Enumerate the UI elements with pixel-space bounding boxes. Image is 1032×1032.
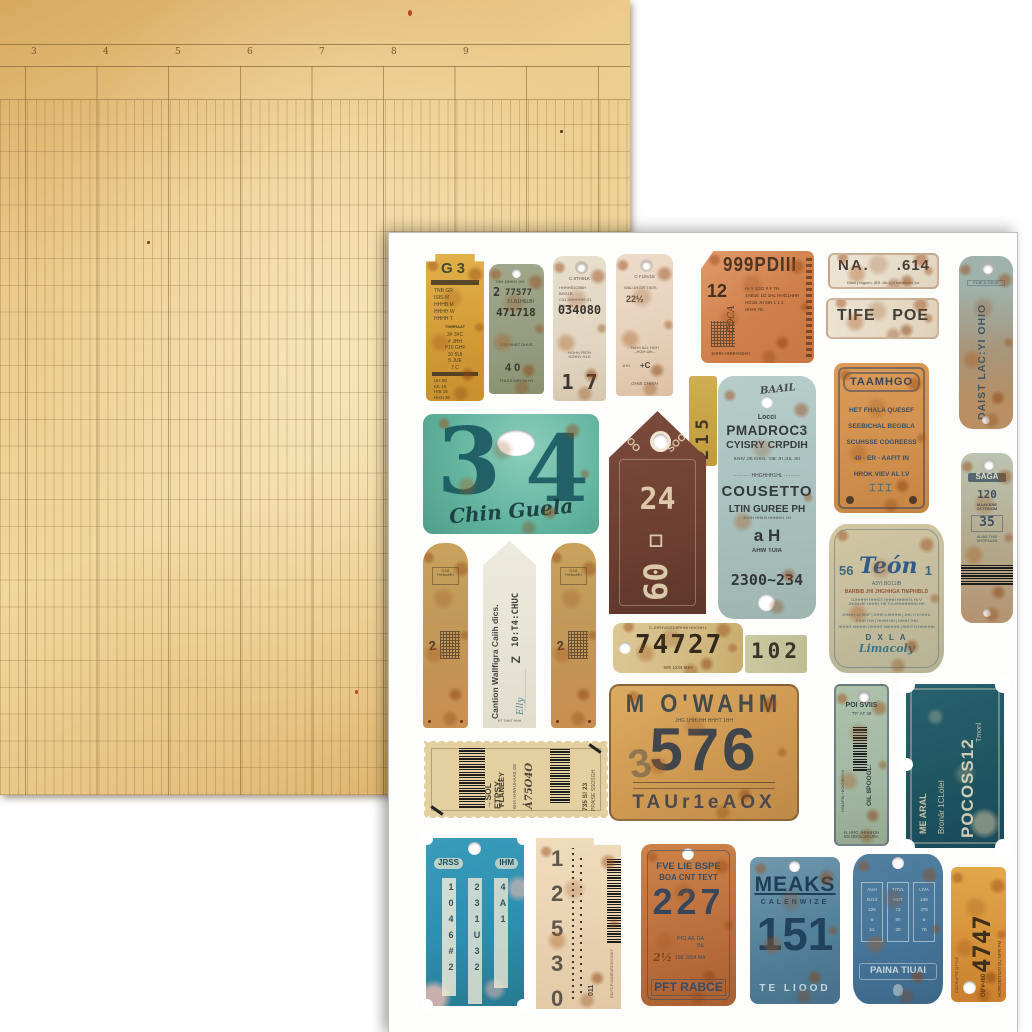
ink-speck — [560, 130, 563, 133]
dotted-rule — [580, 854, 582, 993]
ink-bar — [432, 372, 478, 376]
strip-text-rotated: HOIROBITION DU NPR PM — [997, 873, 1002, 997]
plaque-text: a H — [718, 526, 816, 545]
punch-hole — [468, 842, 481, 855]
ticket-title: 999PDIII — [723, 253, 797, 276]
plate-number: 120 — [961, 489, 1013, 501]
tag-text: PIG AE DA — [677, 936, 704, 942]
tag-badge: IHM — [495, 858, 518, 869]
tag-number: 1 7 — [553, 371, 606, 393]
bookmark-strip-right: GJrA HrHswHlH 2 — [551, 543, 596, 728]
plate-text: 905 1234 5HH — [613, 665, 743, 670]
crest-ornament — [893, 984, 903, 996]
tag-text: H. HHG JHHHH1H ES ODGL1BAJRA — [836, 831, 887, 840]
stamp-text-rotated: PRAISE SSOSGH — [592, 753, 598, 811]
plaque-text: ·········· HHGHHH1HL ·········· — [718, 474, 816, 480]
tag-g3-title: G3 — [426, 261, 484, 278]
tag-number: 151 — [750, 909, 840, 961]
plaque-text: A3YI BO11IB — [829, 582, 944, 588]
plaque-text: JHGH HH6 B HHHHH1 1H — [718, 516, 816, 520]
plaque-script: BAAIL — [760, 382, 797, 397]
grommet — [909, 496, 917, 504]
number-strip: 1046#2 — [442, 878, 456, 996]
tag-text: TwHS ALL HGH →HGH ΩH← — [616, 346, 673, 355]
corner-notch — [421, 999, 433, 1011]
side-notch — [900, 758, 913, 771]
plaque-title: PMADROC3 — [718, 423, 816, 438]
punch-grid — [711, 321, 735, 347]
strip-script: Elly — [516, 671, 526, 715]
ledger-column-number: 8 — [391, 47, 397, 57]
ticket-number: 12 — [707, 281, 727, 301]
plaque-text: JHHHH 1A HHIF | JHHE A HHHHH | JHC H H H… — [829, 612, 944, 630]
tag-meaks-151: MEAKS CALENWIZE 151 TE LIOOD — [750, 857, 840, 1004]
plaque-text: BARBIB JHI JHGHHGA TIMPHIBLD — [829, 590, 944, 596]
strip-text-rotated: O9′#-/60 — [981, 957, 988, 997]
plaque-teon: 56 Teón 1 A3YI BO11IB BARBIB JHI JHGHHGA… — [829, 524, 944, 673]
strip-badge: GJrA HrHswHlH — [432, 567, 459, 585]
number-strip: 4A1 — [494, 878, 508, 988]
tag-text: HGHH FB7H HJHH1 H1H — [553, 351, 606, 360]
plate-34: 3 4 Chin Guela — [423, 414, 599, 534]
ticket-999pdiii: 999PDIII 12 COCA HI Y 1GG # # 7H 1HB1E 1… — [701, 251, 814, 363]
tag-text: B& — [697, 944, 704, 950]
plate-text: POE — [892, 307, 929, 325]
rule-line — [633, 788, 775, 789]
mini-column-text: AUH 5U13 226 ※ 10. — [862, 885, 882, 935]
tag-vertical-text: DAIST LAC:YI OHIO — [977, 290, 989, 420]
tag-script: 2½ — [653, 952, 672, 964]
punch-hole — [983, 609, 991, 617]
tag-cream-034080: C 8TH91K HHHHB3CB6H BHG1B C31 DHrHH3H G1… — [553, 256, 606, 401]
strip-4747: 4747 CACHUPTE QTYLE HOIROBITION DU NPR P… — [951, 867, 1006, 1002]
strip-digits: 1046#2 — [445, 882, 456, 978]
corner-notch — [995, 677, 1011, 693]
plate-text: MAAKENE OCTRNOM — [961, 503, 1013, 512]
strip-text: HT THHT HHH — [483, 720, 536, 724]
tag-text: POI SVIIS — [836, 702, 887, 710]
rivet — [428, 720, 431, 723]
plaque-text: AHW TUIA — [718, 548, 816, 555]
ticket-text: 1HHH HHHHH1HH — [711, 351, 750, 356]
tag-jrss: JRSS IHM 1046#2 231U32 4A1 — [426, 838, 524, 1006]
barcode — [459, 748, 485, 808]
strip-vertical-text: Cantion Wallfigra Caiih dics. — [491, 569, 501, 719]
tag-paina: AUH 5U13 226 ※ 10. TITVL HUT 73 8¤ 30 LI… — [853, 854, 943, 1004]
tag-text: THH 1HHH1 HH — [495, 280, 524, 284]
plaque-script: Limacoly — [829, 643, 944, 655]
punch-grid — [568, 631, 588, 659]
ticket-text-rotated: Bronär 1CLoleI — [938, 704, 947, 834]
label-rows: HET FHALA QUESEF SEEBICHAL BEGBLA SCUHSS… — [834, 403, 929, 483]
dotted-rule — [572, 848, 574, 999]
tag-text: 'TF' AT 49 — [836, 711, 887, 716]
barcode — [961, 565, 1013, 585]
tag-text: GHIB CHHIH — [616, 381, 673, 386]
stamp-script-rotated: Ȧ75O4O — [524, 753, 535, 809]
plate-text: TIFE — [837, 307, 876, 325]
plate-text: NA. — [838, 258, 870, 275]
strip-letter: Z — [510, 656, 523, 663]
corner-notch — [517, 999, 529, 1011]
tag-serial: 471718 — [496, 307, 536, 319]
ledger-column-number: 9 — [463, 47, 469, 57]
plaque-number: 576 — [611, 716, 797, 783]
tag-badge: JRSS — [434, 858, 463, 869]
tag-stamp: 4 0 — [505, 362, 520, 374]
corner-notch — [899, 677, 915, 693]
tag-g3-rows: UH 5E KK 10 HIB 15 HHH 30 — [434, 378, 450, 400]
ledger-column-number: 3 — [31, 47, 37, 57]
strip-text-rotated: 011 — [588, 966, 596, 996]
strip-digits: 4A1 — [497, 882, 508, 930]
tag-g3-rows: TNB GR ISIS M HHHB M HHHH W HHHH T — [434, 288, 455, 323]
stamp-text-rotated: 735 S! 23 — [582, 751, 589, 811]
plaque-number: 1 — [925, 564, 932, 579]
corner-notch — [421, 833, 433, 845]
tag-text: FVE LIE BSPE — [641, 862, 736, 873]
barcode — [550, 749, 570, 805]
ledger-column-number: 5 — [175, 47, 181, 57]
punch-hole — [761, 396, 773, 408]
corner-notch — [899, 839, 915, 855]
tag-poi-barcode: POI SVIIS 'TF' AT 49 OIL 8POOGL: HIMAFBL… — [834, 684, 889, 846]
strip-text-rotated: CACHUPTE QTYLE — [955, 875, 959, 993]
plate-tife-poe: TIFE POE — [826, 298, 939, 339]
ledger-column-number: 4 — [103, 47, 109, 57]
plaque-text: Locci — [718, 414, 816, 422]
rule-line — [633, 782, 775, 783]
strip-digits: 12530 — [544, 846, 569, 1004]
plaque-number: 2300~234 — [718, 572, 816, 589]
label-taamhgo: TAAMHGO HET FHALA QUESEF SEEBICHAL BEGBL… — [834, 363, 929, 513]
mini-column: AUH 5U13 226 ※ 10. — [861, 882, 883, 942]
grommet — [846, 496, 854, 504]
punch-hole — [892, 857, 904, 869]
punch-hole — [982, 458, 996, 472]
tag-number: 22½ — [626, 294, 644, 304]
tag-text: CALENWIZE — [750, 899, 840, 907]
label-number: 215 — [694, 382, 713, 460]
ticket-pocoss12: POCOSS12 Bronär 1CLoleI Tmonl ME ARAL — [906, 684, 1004, 848]
punch-hole — [512, 269, 521, 278]
tag-arc-text: HOO — [619, 430, 643, 454]
tag-number-rotated: 60▫ — [639, 523, 675, 601]
photo-canvas: 3 4 5 6 7 8 9 G3 TNB GR ISIS M HHHB M HH… — [0, 0, 1032, 1032]
tag-g3-divider: TIHRRAAT — [426, 325, 484, 329]
label-title: TAAMHGO — [843, 372, 920, 392]
tag-serial: 034080 — [553, 304, 606, 317]
plate-number: 35 — [971, 515, 1003, 532]
ink-speck — [147, 241, 150, 244]
tag-text: 3 LB1H6LBI — [507, 300, 534, 306]
punch-hole — [982, 416, 990, 424]
plate-digit: 3 — [437, 410, 501, 513]
plaque-text: GJHHHH HHHGT HHHH HHHHTL HI V JHGH HE HH… — [829, 598, 944, 607]
strip-text-rotated: BD/7CPUM4R4RDHV30A7 — [610, 858, 614, 998]
strip-badge: GJrA HrHswHlH — [560, 567, 587, 585]
tag-text: 19E 2804 MA — [675, 956, 705, 962]
tag-text: TE LIOOD — [750, 983, 840, 994]
ink-speck — [355, 690, 358, 694]
rivet — [588, 720, 591, 723]
mini-column-text: LIVA 249 378 ※ 70 — [914, 885, 934, 935]
ticket-text-rotated: Tmonl — [976, 692, 984, 742]
rivet — [460, 720, 463, 723]
plaque-text: TAUr1eAOX — [611, 792, 797, 813]
tag-text: 1HH — [622, 364, 630, 368]
ticket-text-rotated: ME ARAL — [918, 744, 928, 834]
punch-grid — [440, 631, 460, 659]
label-102: 102 — [745, 635, 807, 673]
strip-digits: 231U32 — [471, 882, 482, 978]
plaque-title: M O'WAHM — [611, 690, 797, 718]
label-figures: ⌶⌶⌶ — [834, 483, 929, 494]
plaque-pmadroc: BAAIL Locci PMADROC3 CYISRY CRPDIH 84HV … — [718, 376, 816, 619]
mini-column-text: TITVL HUT 73 8¤ 30 — [888, 885, 908, 935]
mini-column: TITVL HUT 73 8¤ 30 — [887, 882, 909, 942]
tag-vertical-text: OIL 8POOGL: — [866, 726, 873, 806]
ledger-column-number: 6 — [247, 47, 253, 57]
plaque-text: COUSETTO — [718, 484, 816, 501]
tags-sheet: G3 TNB GR ISIS M HHHB M HHHH W HHHH T TI… — [388, 232, 1018, 1032]
ticket-title-rotated: POCOSS12 — [958, 694, 977, 838]
strip-number: 2 — [428, 639, 437, 654]
tag-227: FVE LIE BSPE BOA CNT TEYT 227 PIG AE DA … — [641, 844, 736, 1006]
plate-text: .614 — [897, 258, 930, 275]
tag-stamp: +C — [640, 362, 650, 371]
punch-hole — [963, 981, 976, 994]
bookmark-strip-left: GJrA HrHswHlH 2 — [423, 543, 468, 728]
ink-bar — [431, 280, 479, 285]
tag-text: FUIE N CEUE — [967, 280, 1005, 286]
plate-subtext: Blani | raguen. |BS .Ab |QI| bonsbone jo… — [830, 281, 937, 285]
ledger-header-line — [0, 44, 630, 45]
tag-number: 2 — [493, 286, 500, 299]
tag-g3: G3 TNB GR ISIS M HHHB M HHHH W HHHH T TI… — [426, 254, 484, 401]
tag-pink-22: C F18V18 W8LGH DR T8GS 22½ TwHS ALL HGH … — [616, 254, 673, 396]
punch-hole — [575, 261, 588, 274]
tag-vertical-text: HIMAFBL+BOKHBOVH — [841, 726, 845, 812]
tag-banner: PAINA TIUAI — [859, 963, 937, 980]
arrow-strip-caution: Cantion Wallfigra Caiih dics. 10:T4:CHUC… — [483, 541, 536, 728]
tag-text: W8LGH DR T8GS — [624, 286, 657, 290]
tag-text: THLE5 W5Y GLHY — [489, 379, 544, 383]
punch-hole — [640, 259, 653, 272]
tag-number: 24 — [609, 483, 706, 517]
punch-hole — [758, 594, 775, 611]
punch-hole — [789, 861, 800, 872]
tag-green-77577: THH 1HHH1 HH 2 77577 3 LB1H6LBI 471718 C… — [489, 264, 544, 394]
rivet — [556, 720, 559, 723]
ticket-rows: HI Y 1GG # # 7H 1HB1E 1G 1HL HHG1HHH HG1… — [745, 285, 799, 313]
stamp-text-rotated: FLANEEY — [498, 755, 506, 807]
mini-column: LIVA 249 378 ※ 70 — [913, 882, 935, 942]
plate-number: 74727 — [635, 631, 723, 660]
plate-na-614: NA. .614 Blani | raguen. |BS .Ab |QI| bo… — [828, 253, 939, 289]
barcode — [853, 727, 867, 771]
strip-12530: 12530 011 BD/7CPUM4R4RDHV30A7 — [536, 838, 621, 1009]
ink-speck — [408, 10, 412, 16]
tag-title: MEAKS — [750, 873, 840, 897]
strip-vertical-text: 10:T4:CHUC — [511, 567, 521, 647]
plaque-text: LTIN GUREE PH — [718, 504, 816, 515]
tag-text: C F18V18 — [616, 274, 673, 279]
tag-footer: PFT RABCE — [651, 979, 726, 996]
tag-number: 227 — [641, 882, 736, 922]
punch-hole — [619, 642, 631, 654]
plaque-script: Teón — [859, 554, 918, 579]
punch-hole — [981, 262, 995, 276]
ledger-column-number: 7 — [319, 47, 325, 57]
corner-notch — [995, 839, 1011, 855]
plate-text: ALIAS THIS SHOPSAAR — [961, 535, 1013, 544]
tag-g3-rows: 3# 3#C # JHH P10 GHF 10 5UI 5 JUE 7 C — [426, 332, 484, 371]
tag-serial: 77577 — [505, 288, 532, 298]
label-number: 102 — [745, 640, 807, 664]
plaque-mowahm: M O'WAHM JHG 1HHI HH HHHT 1HH 3 576 TAUr… — [609, 684, 799, 821]
strip-number: 2 — [556, 639, 565, 654]
ticket-edge-ornament — [806, 257, 812, 357]
plate-74727: G.JHFHVGG3 BRHNI HGCHH L 74727 905 1234 … — [613, 623, 743, 673]
stamp-ticket: →SOL ETPSY- FLANEEY BHA HHVHJHAAS.GE Ȧ75… — [424, 741, 608, 818]
vertical-tag-daist: FUIE N CEUE DAIST LAC:YI OHIO — [959, 256, 1013, 429]
plaque-number: 56 — [839, 564, 853, 579]
ledger-column-lines — [0, 66, 630, 100]
plate-title: SAGA — [968, 473, 1006, 482]
plaque-text: CYISRY CRPDIH — [718, 440, 816, 452]
plaque-text: 84HV JIB KHHL. 'HB' JH JHL JIH — [718, 456, 816, 461]
number-strip: 231U32 — [468, 878, 482, 1004]
tag-text: C3Y HHBT DHUS — [489, 343, 544, 347]
vertical-plate-saga: SAGA 120 MAAKENE OCTRNOM 35 ALIAS THIS S… — [961, 453, 1013, 623]
tag-text: C 8TH91K — [553, 276, 606, 281]
corner-notch — [517, 833, 529, 845]
stamp-text-rotated: BHA HHVHJHAAS.GE — [512, 753, 517, 809]
